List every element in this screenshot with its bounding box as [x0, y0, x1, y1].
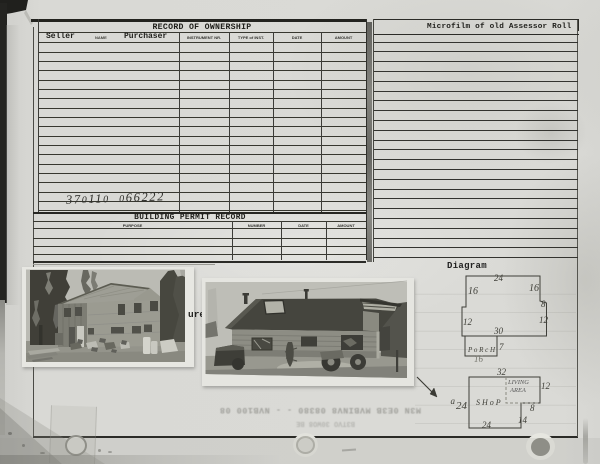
svg-text:8: 8	[541, 299, 546, 309]
svg-text:12: 12	[539, 315, 549, 325]
svg-text:AREA: AREA	[509, 387, 526, 394]
svg-text:a: a	[451, 396, 456, 406]
svg-text:16: 16	[468, 286, 478, 297]
svg-text:30: 30	[493, 326, 504, 336]
svg-text:P o R c H: P o R c H	[467, 346, 496, 354]
svg-text:14: 14	[518, 415, 528, 425]
svg-text:12: 12	[541, 381, 551, 391]
svg-text:7: 7	[499, 342, 504, 352]
svg-text:12: 12	[463, 317, 473, 327]
svg-text:LIVING: LIVING	[507, 379, 529, 386]
svg-text:32: 32	[496, 367, 507, 377]
svg-text:24: 24	[456, 400, 468, 412]
svg-text:8: 8	[530, 403, 535, 413]
svg-text:16: 16	[474, 354, 484, 364]
svg-text:16: 16	[529, 283, 539, 294]
svg-text:24: 24	[494, 273, 504, 283]
svg-text:S H o P: S H o P	[476, 398, 501, 407]
